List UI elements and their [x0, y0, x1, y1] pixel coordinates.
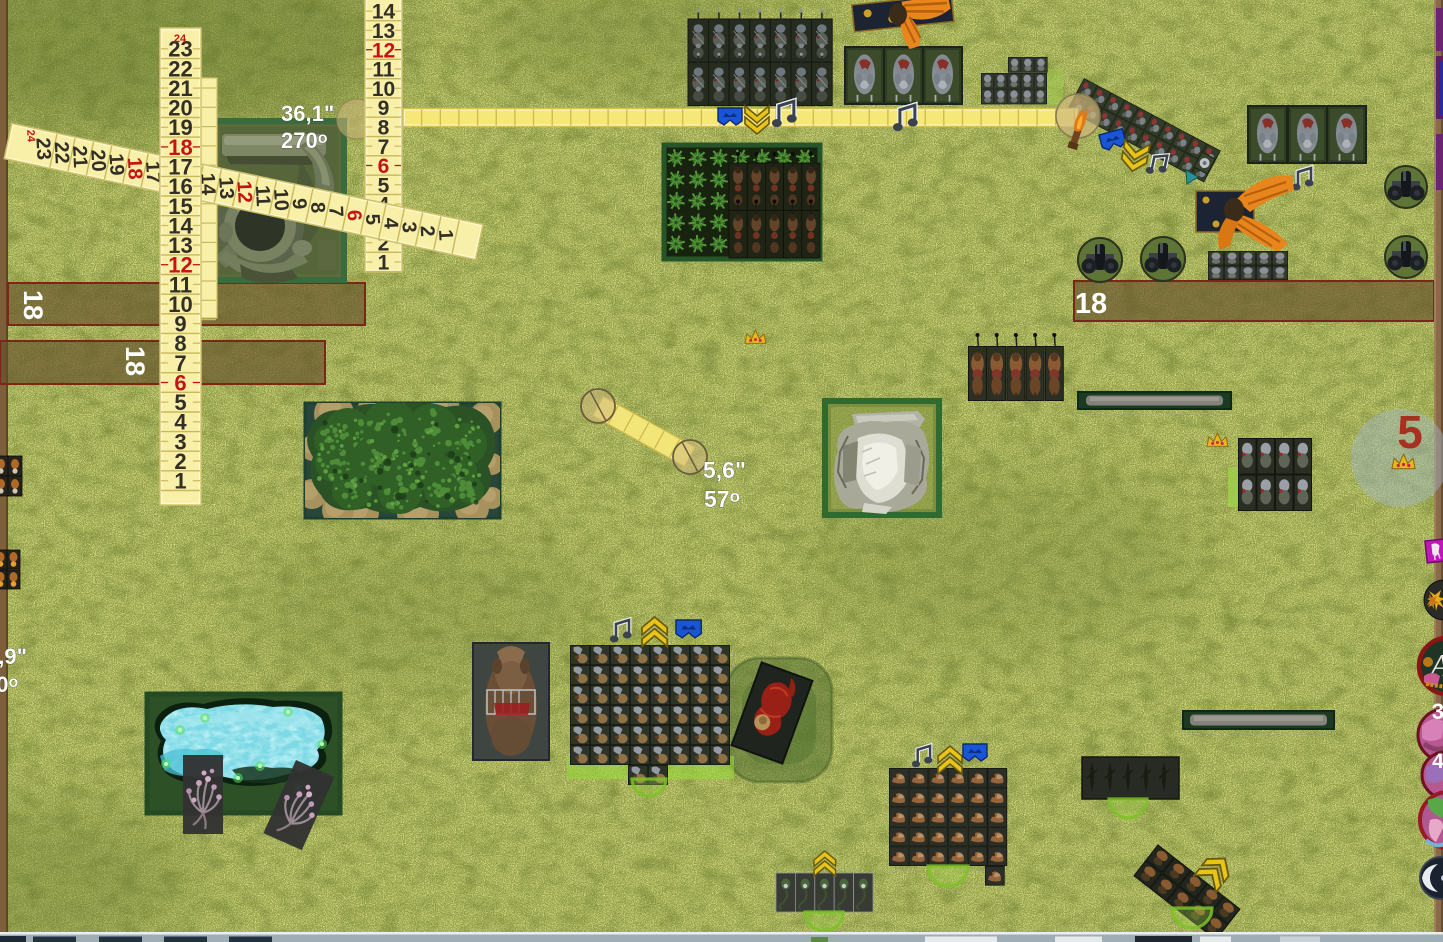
svg-text:1: 1 [174, 469, 186, 494]
svg-text:18: 18 [18, 290, 48, 320]
svg-text:36,1": 36,1" [281, 101, 334, 126]
svg-text:18: 18 [120, 346, 150, 376]
svg-text:24: 24 [174, 33, 187, 45]
svg-text:1: 1 [378, 252, 390, 275]
svg-text:6,9": 6,9" [0, 644, 27, 669]
svg-text:24: 24 [24, 129, 37, 143]
svg-text:3: 3 [1432, 699, 1443, 724]
svg-text:18: 18 [1075, 288, 1107, 320]
svg-text:1: 1 [434, 229, 457, 241]
svg-text:5: 5 [1397, 406, 1423, 458]
svg-text:5,6": 5,6" [703, 457, 746, 483]
svg-text:4: 4 [1432, 750, 1443, 773]
